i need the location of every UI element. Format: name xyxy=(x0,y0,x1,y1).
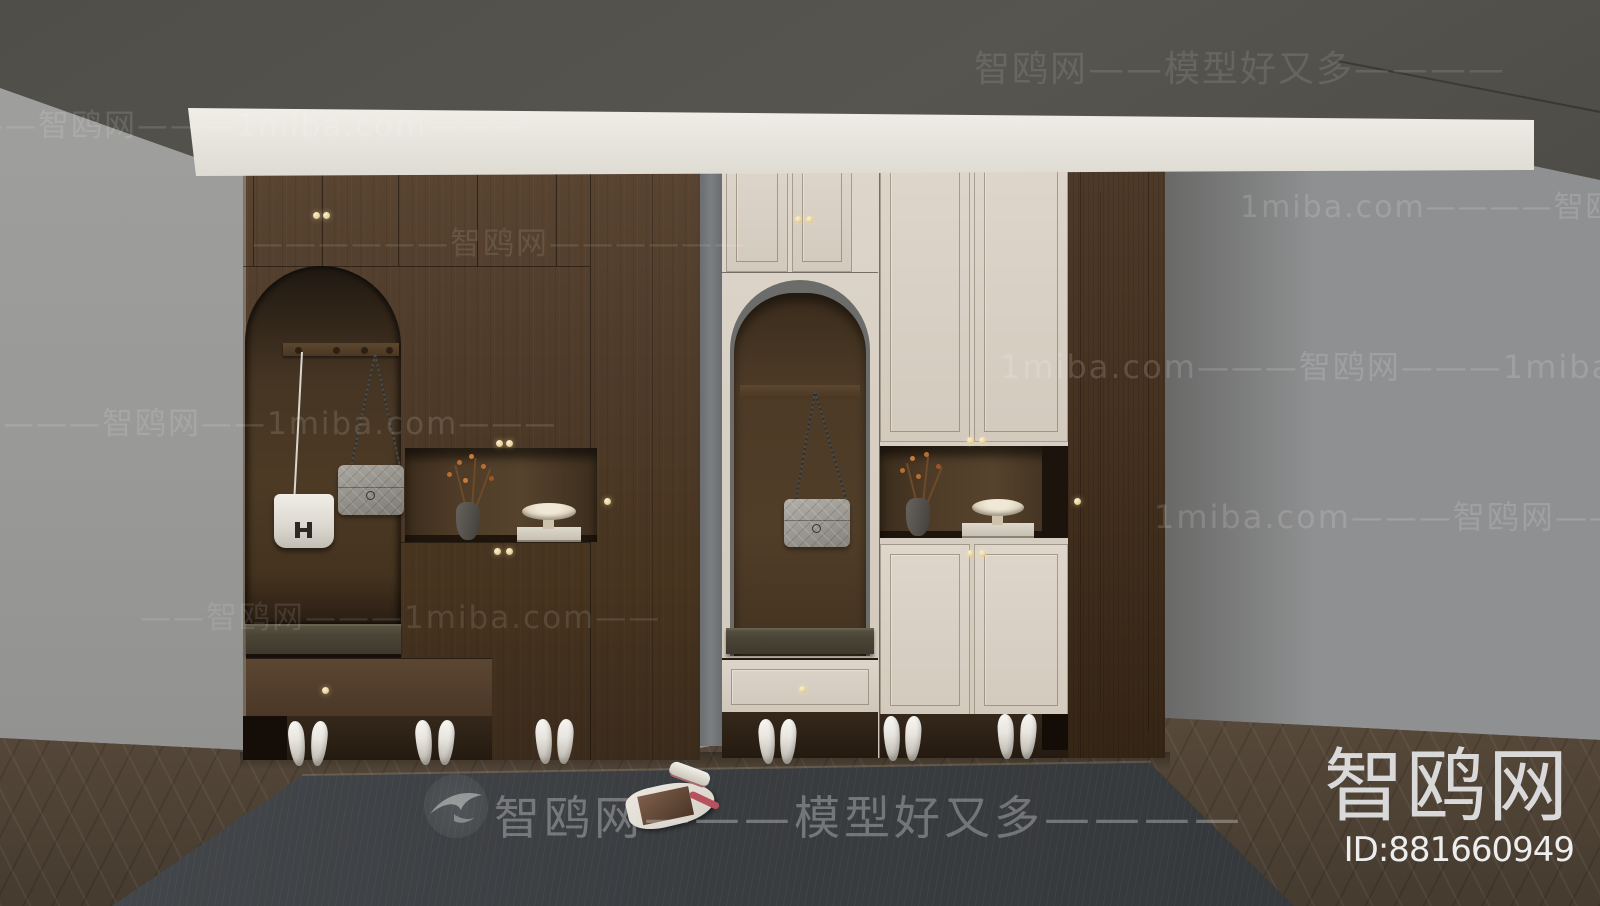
watermark-row: 1miba.com———智鸥网———1miba.com xyxy=(1000,342,1600,388)
panel-seam xyxy=(399,542,590,543)
arched-coat-niche-right xyxy=(734,293,866,656)
quilted-chain-handbag xyxy=(338,465,404,515)
coat-hook xyxy=(333,347,340,354)
pedestal-bowl xyxy=(522,503,576,520)
toe-void xyxy=(1042,714,1068,750)
cabinet-knob xyxy=(967,550,974,557)
watermark-row: 1miba.com———智鸥网———— xyxy=(1154,492,1600,538)
upper-door xyxy=(792,158,852,272)
watermark-row: 智鸥网——模型好又多———— xyxy=(974,40,1506,92)
high-heels-pair xyxy=(996,714,1042,762)
cabinet-knob xyxy=(1074,498,1081,505)
pedestal-bowl xyxy=(972,499,1024,516)
high-heels-pair xyxy=(414,720,460,768)
cabinet-knob xyxy=(979,437,986,444)
walnut-side-column xyxy=(1068,152,1165,758)
brand-bird-badge xyxy=(424,774,488,838)
watermark-row: ——智鸥网———1miba.com—— xyxy=(140,592,661,637)
high-heels-pair xyxy=(882,716,928,764)
lower-door xyxy=(974,544,1068,716)
cabinet-knob xyxy=(806,216,813,223)
cabinet-knob xyxy=(967,437,974,444)
display-niche-left xyxy=(405,448,597,542)
watermark-row: ——————智鸥网—————— xyxy=(252,218,747,263)
arch-trim xyxy=(730,280,870,656)
seagull-icon xyxy=(424,774,488,838)
book-slab xyxy=(517,527,581,542)
cc-logo-icon xyxy=(366,491,375,500)
decorative-vase xyxy=(456,502,480,540)
cabinet-knob xyxy=(979,550,986,557)
high-heels-pair xyxy=(534,719,580,767)
niche-shadow xyxy=(1042,446,1068,538)
tall-door xyxy=(880,158,970,442)
model-id: ID:881660949 xyxy=(1344,830,1574,870)
flower-branches xyxy=(888,448,958,504)
h-clasp-icon xyxy=(298,528,309,532)
watermark-row: 1miba.com————智鸥网——— xyxy=(1240,182,1600,226)
flower-branches xyxy=(435,450,505,508)
right-cabinet xyxy=(722,152,1165,758)
high-heels-pair xyxy=(757,719,803,767)
cabinet-knob xyxy=(506,548,513,555)
cabinet-knob xyxy=(494,548,501,555)
scene: 智鸥网——模型好又多———— ——智鸥网———1miba.com——— 1mib… xyxy=(0,0,1600,906)
coat-hook xyxy=(386,347,393,354)
coat-hook-rail xyxy=(740,385,860,398)
arched-coat-niche-left xyxy=(245,266,401,624)
display-niche-right xyxy=(880,446,1068,538)
bag-flap-line xyxy=(338,487,404,488)
cabinet-knob xyxy=(604,498,611,505)
brand-logo: 智鸥网 xyxy=(1324,722,1570,838)
high-heels-pair xyxy=(287,721,333,769)
watermark-row: 智鸥网———模型好又多———— xyxy=(494,782,1244,848)
drawer-knob xyxy=(799,686,806,693)
panel-seam xyxy=(243,266,590,267)
bag-chain xyxy=(795,391,816,500)
watermark-row: ——智鸥网———1miba.com——— xyxy=(0,100,526,145)
shoe-drawer-left xyxy=(246,658,492,717)
toe-void xyxy=(243,716,287,760)
lower-door xyxy=(880,544,970,716)
right-wall-shadow xyxy=(1165,150,1315,750)
watermark-row: ————智鸥网——1miba.com——— xyxy=(0,398,557,443)
book-slab xyxy=(962,523,1034,538)
bag-chain xyxy=(814,391,848,502)
cc-logo-icon xyxy=(812,524,821,533)
coat-hook xyxy=(361,347,368,354)
quilted-chain-handbag xyxy=(784,499,850,547)
decorative-vase xyxy=(906,498,930,536)
drawer-knob xyxy=(322,687,329,694)
tall-door xyxy=(974,158,1068,442)
cabinet-knob xyxy=(795,216,802,223)
white-leather-handbag xyxy=(274,494,334,548)
bench-cushion-right xyxy=(726,628,874,654)
